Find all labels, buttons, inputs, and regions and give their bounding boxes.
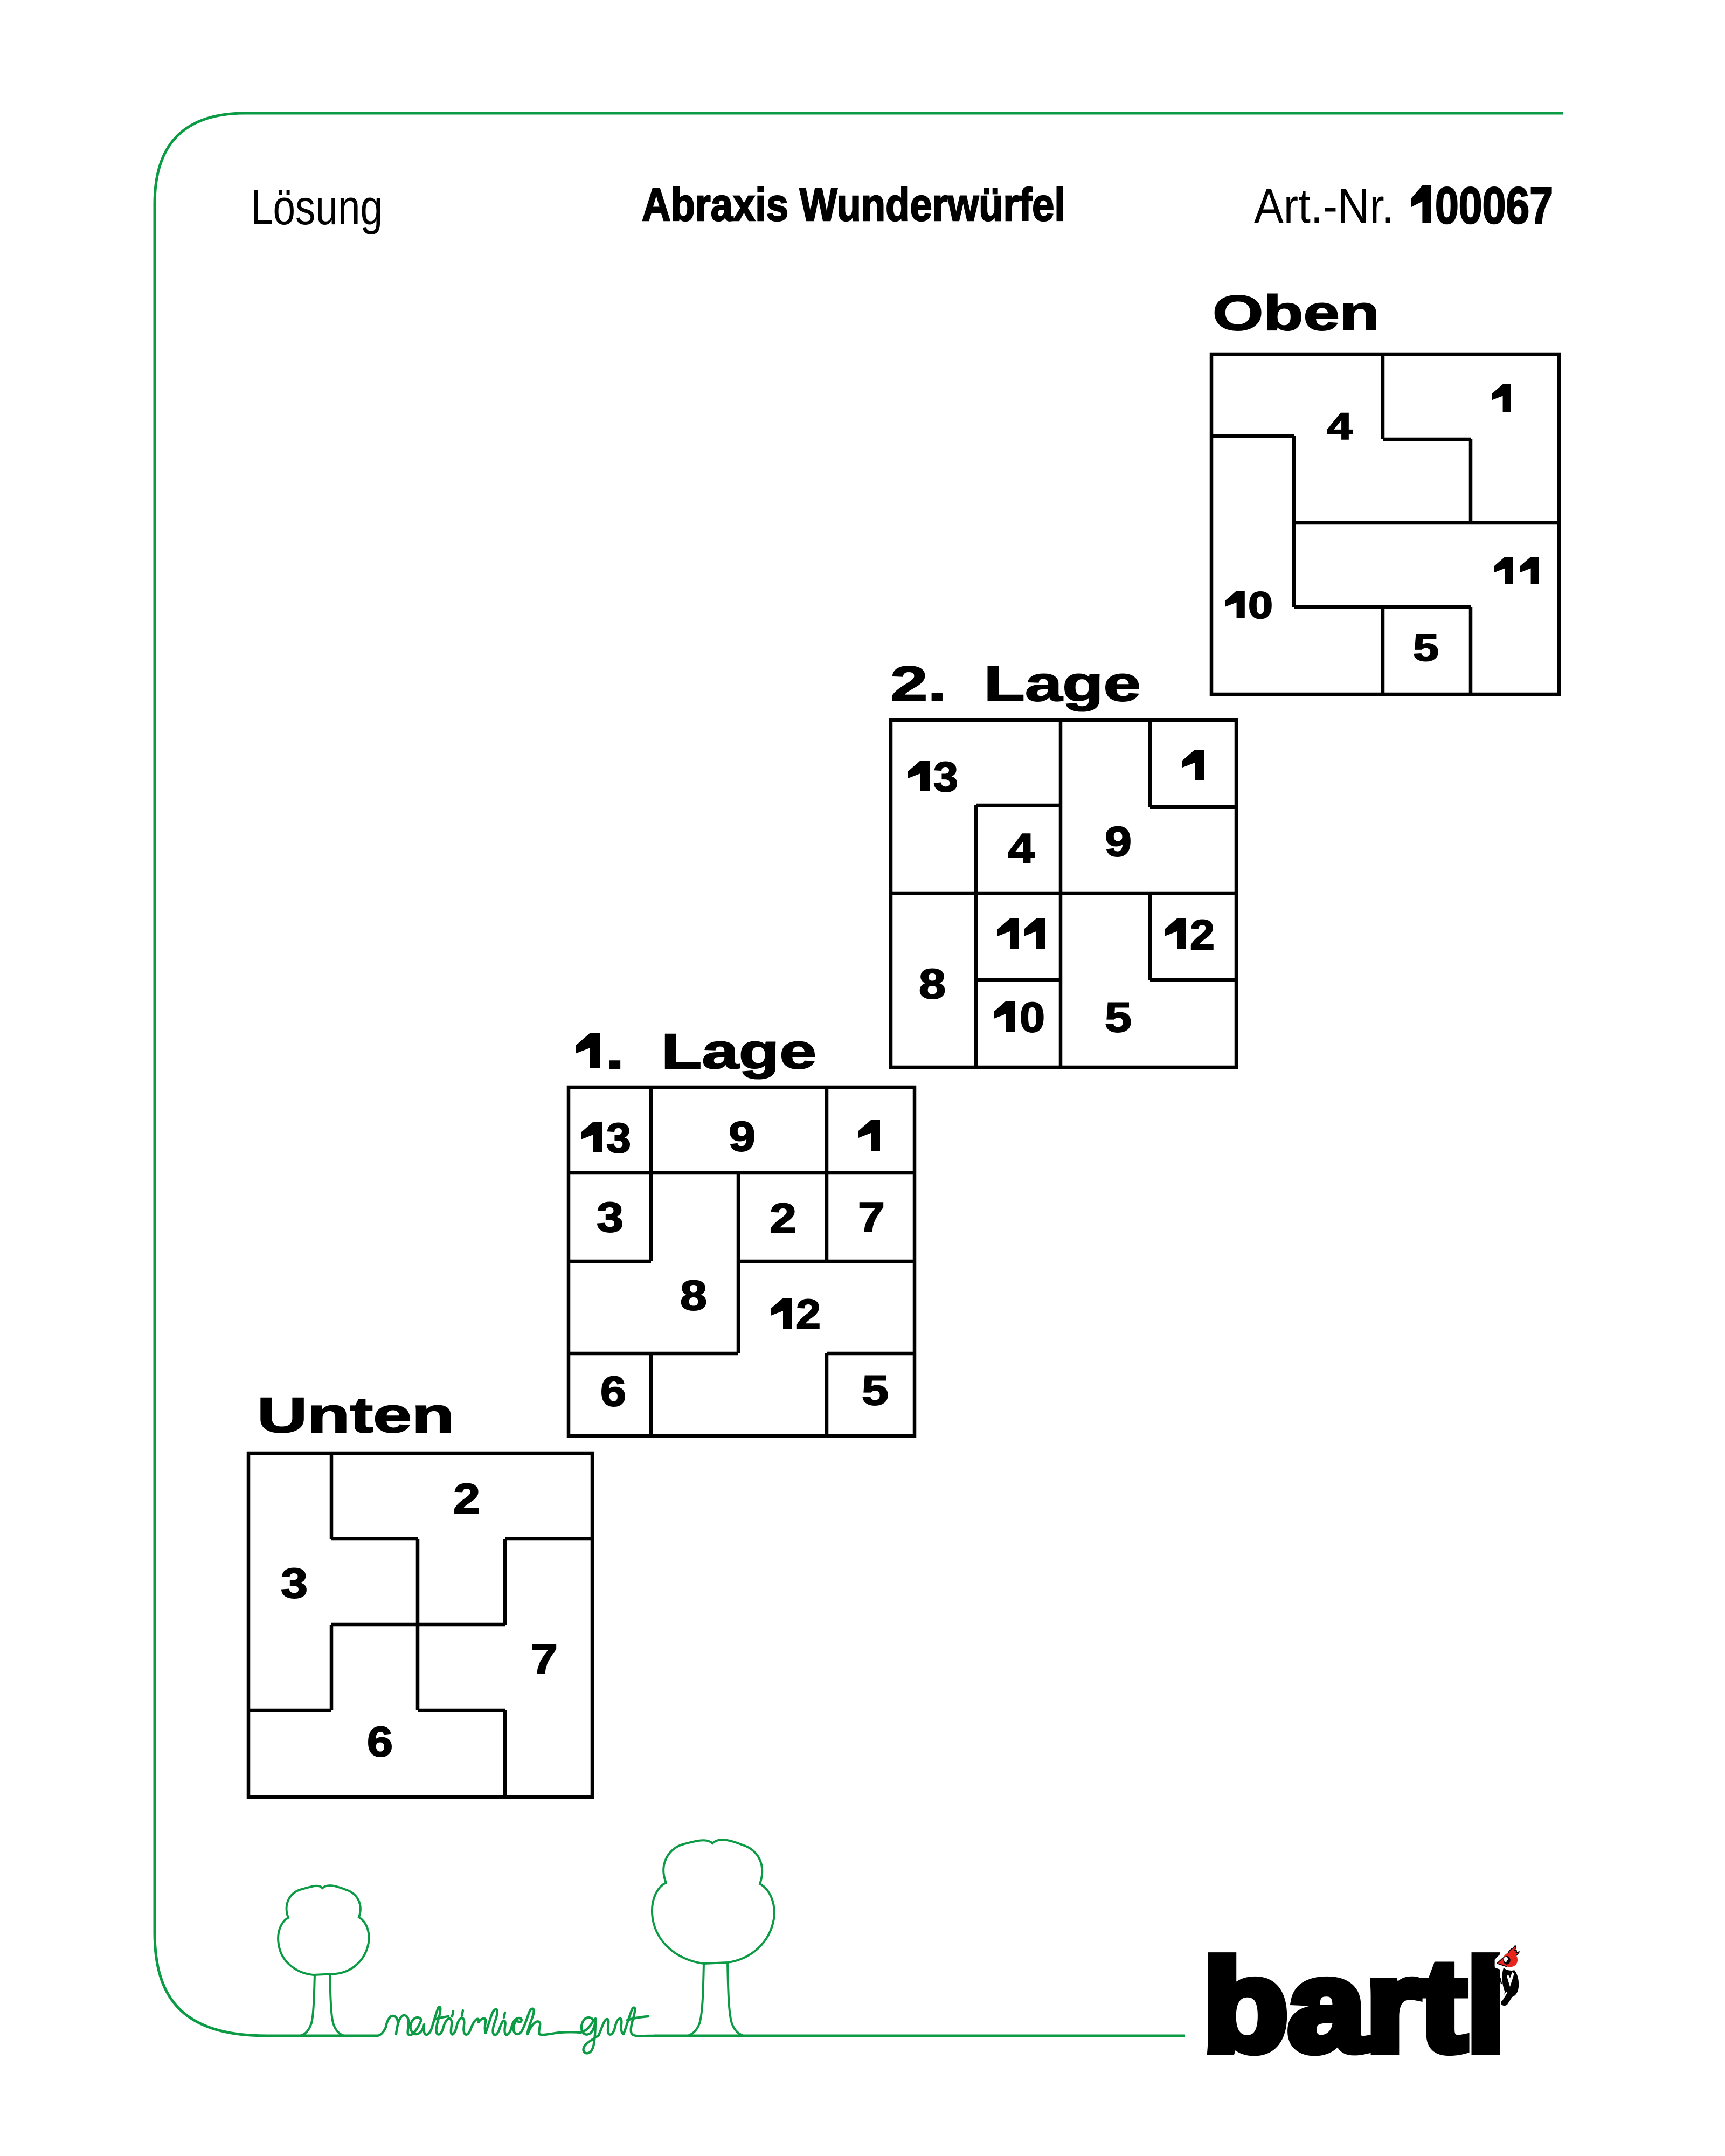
svg-text:3: 3 [606, 1114, 631, 1162]
svg-text:2: 2 [770, 1194, 796, 1242]
svg-text:2: 2 [796, 1290, 821, 1338]
svg-text:Unten: Unten [257, 1388, 454, 1443]
svg-text:3: 3 [597, 1193, 624, 1241]
svg-text:8: 8 [919, 960, 946, 1007]
svg-text:0: 0 [1020, 993, 1045, 1041]
svg-text:6: 6 [600, 1367, 626, 1415]
svg-text:9: 9 [1105, 818, 1132, 865]
svg-text:0: 0 [1248, 584, 1273, 626]
svg-text:Art.-Nr.: Art.-Nr. [1254, 179, 1394, 233]
svg-text:8: 8 [680, 1272, 707, 1319]
svg-text:4: 4 [1327, 405, 1353, 447]
svg-text:5: 5 [862, 1366, 889, 1414]
svg-text:. Lage: . Lage [606, 1024, 816, 1079]
svg-text:9: 9 [729, 1112, 756, 1160]
svg-text:3: 3 [933, 753, 958, 800]
svg-text:3: 3 [281, 1559, 308, 1607]
svg-text:2: 2 [453, 1475, 480, 1522]
svg-text:Oben: Oben [1213, 286, 1380, 341]
svg-text:00067: 00067 [1435, 177, 1553, 234]
svg-text:6: 6 [367, 1718, 393, 1765]
svg-text:bartl: bartl [1203, 1933, 1505, 2078]
svg-text:5: 5 [1413, 627, 1439, 669]
svg-text:7: 7 [531, 1635, 558, 1683]
svg-text:Abraxis Wunderwürfel: Abraxis Wunderwürfel [642, 179, 1065, 231]
svg-text:5: 5 [1105, 993, 1132, 1041]
svg-text:2: 2 [1190, 911, 1215, 958]
svg-text:4: 4 [1008, 825, 1035, 872]
svg-text:Lösung: Lösung [251, 180, 383, 235]
svg-text:7: 7 [858, 1193, 885, 1241]
svg-text:2. Lage: 2. Lage [890, 657, 1141, 711]
